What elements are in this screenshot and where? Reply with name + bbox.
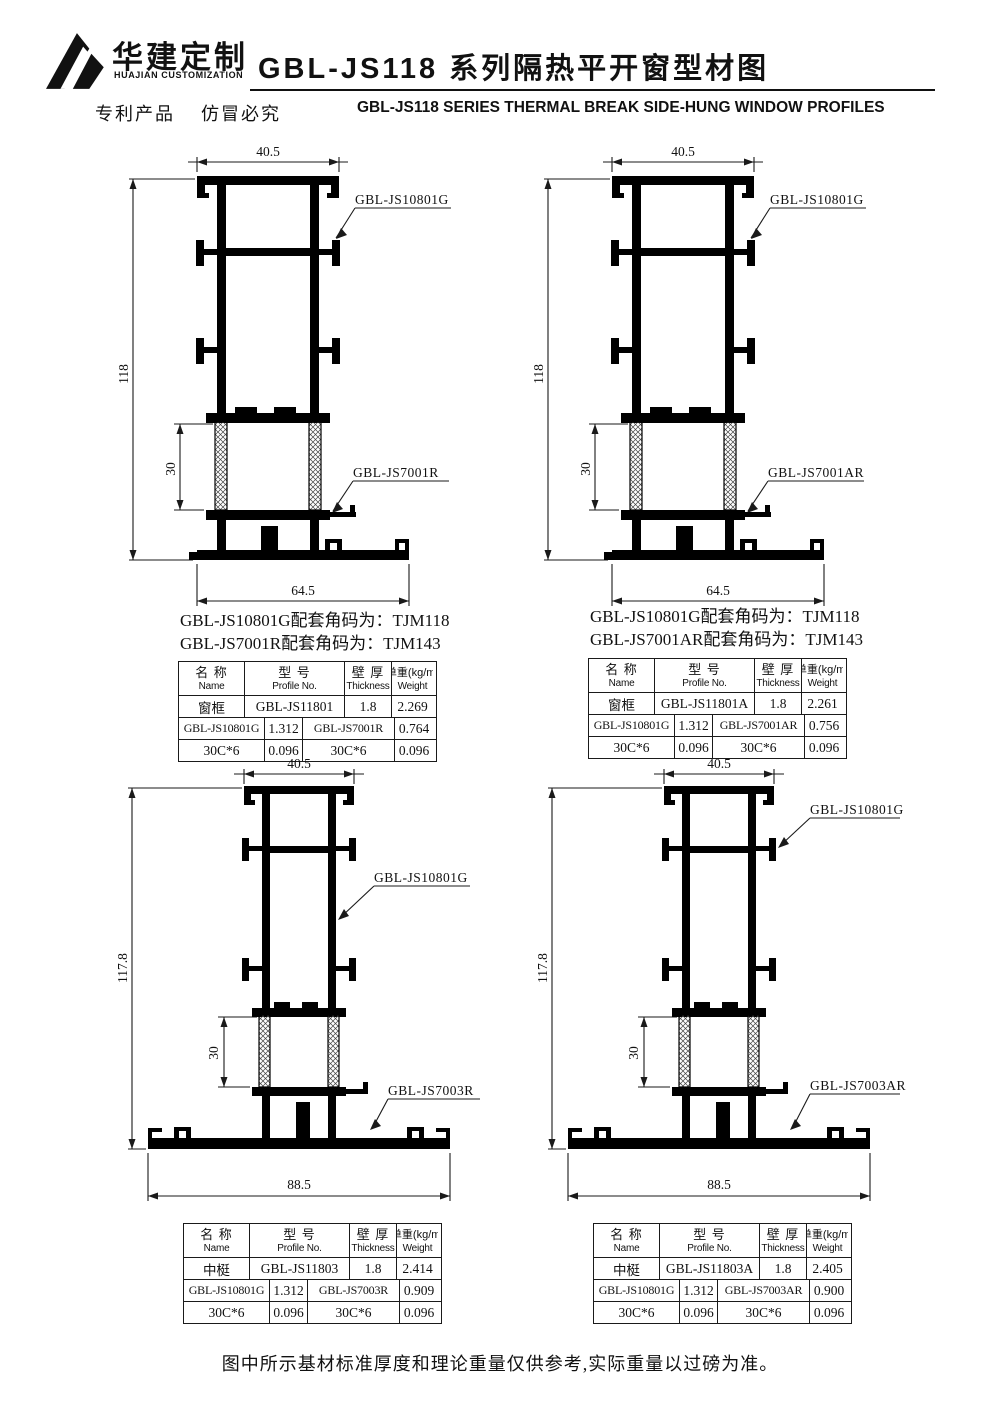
cell: 1.8 [755,693,802,714]
th-thickness: 壁 厚Thickness [345,662,392,695]
cell: 30C*6 [713,737,805,758]
corner-code-notes: GBL-JS10801G配套角码为：TJM118 GBL-JS7001R配套角码… [180,609,450,655]
th-model: 型 号Profile No. [245,662,345,695]
cell: 30C*6 [589,737,675,758]
cell: GBL-JS7003R [308,1280,400,1301]
th-weight: 单重(kg/m)Weight [392,662,433,695]
page-title-cn: GBL-JS118 系列隔热平开窗型材图 [258,45,769,87]
cell: 1.8 [345,696,392,717]
cell: 0.096 [400,1302,438,1323]
dim-inner: 30 [626,1046,641,1060]
cell: 0.096 [810,1302,848,1323]
cell: 0.096 [270,1302,308,1323]
cell: 2.405 [807,1258,848,1279]
spec-table-frame-left: 名 称Name 型 号Profile No. 壁 厚Thickness 单重(k… [178,661,437,762]
dim-height: 117.8 [118,953,130,983]
table-row: GBL-JS10801G 1.312 GBL-JS7001AR 0.756 [589,714,846,736]
th-name: 名 称Name [179,662,245,695]
th-model: 型 号Profile No. [250,1224,350,1257]
dim-width-top: 40.5 [707,756,731,771]
note-line: GBL-JS7001AR配套角码为：TJM143 [590,628,863,651]
table-header-row: 名 称Name 型 号Profile No. 壁 厚Thickness 单重(k… [589,659,846,692]
cell: 0.764 [395,718,433,739]
dim-width-bottom: 88.5 [707,1177,731,1192]
th-weight: 单重(kg/m)Weight [802,659,843,692]
cell: 30C*6 [184,1302,270,1323]
cell: 0.096 [680,1302,718,1323]
callout-part-profile: GBL-JS7001AR [768,465,864,480]
profile-drawing-frame-left: 40.5 118 30 64.5 GBL-JS10801G GBL-JS7001… [118,142,478,612]
th-model: 型 号Profile No. [655,659,755,692]
huajian-logo-icon [46,33,112,89]
callout-part-profile: GBL-JS7003R [388,1083,474,1098]
dim-height: 117.8 [538,953,550,983]
th-name: 名 称Name [594,1224,660,1257]
dim-inner: 30 [206,1046,221,1060]
spec-table-frame-right: 名 称Name 型 号Profile No. 壁 厚Thickness 单重(k… [588,658,847,759]
page: 华建定制 HUAJIAN CUSTOMIZATION 专利产品 仿冒必究 GBL… [0,0,1000,1415]
profile-drawing-mullion-left: 40.5 117.8 30 88.5 GBL-JS10801G GBL-JS70… [118,756,498,1208]
dim-height: 118 [533,364,546,384]
cell: GBL-JS10801G [179,718,265,739]
cell: GBL-JS11801A [655,693,755,714]
callout-main-profile: GBL-JS10801G [770,192,864,207]
table-header-row: 名 称Name 型 号Profile No. 壁 厚Thickness 单重(k… [594,1224,851,1257]
th-weight: 单重(kg/m)Weight [397,1224,438,1257]
table-row: 窗框 GBL-JS11801 1.8 2.269 [179,695,436,717]
footer-note: 图中所示基材标准厚度和理论重量仅供参考,实际重量以过磅为准。 [0,1350,1000,1376]
table-row: GBL-JS10801G 1.312 GBL-JS7003R 0.909 [184,1279,441,1301]
table-header-row: 名 称Name 型 号Profile No. 壁 厚Thickness 单重(k… [179,662,436,695]
cell: GBL-JS7001R [303,718,395,739]
cell: GBL-JS7001AR [713,715,805,736]
note-line: GBL-JS10801G配套角码为：TJM118 [590,605,863,628]
cell: 窗框 [179,696,245,717]
callout-main-profile: GBL-JS10801G [374,870,468,885]
cell: 中梃 [594,1258,660,1279]
th-name: 名 称Name [184,1224,250,1257]
cell: 0.096 [675,737,713,758]
table-row: GBL-JS10801G 1.312 GBL-JS7003AR 0.900 [594,1279,851,1301]
th-model: 型 号Profile No. [660,1224,760,1257]
dim-inner: 30 [578,462,593,476]
cell: 0.909 [400,1280,438,1301]
cell: 1.8 [350,1258,397,1279]
table-row: 30C*6 0.096 30C*6 0.096 [589,736,846,758]
cell: 1.312 [675,715,713,736]
cell: GBL-JS10801G [594,1280,680,1301]
cell: 1.8 [760,1258,807,1279]
dim-width-top: 40.5 [256,144,280,159]
cell: 窗框 [589,693,655,714]
cell: 1.312 [270,1280,308,1301]
cell: GBL-JS10801G [184,1280,270,1301]
cell: 2.414 [397,1258,438,1279]
dim-inner: 30 [163,462,178,476]
cell: 1.312 [265,718,303,739]
cell: 2.269 [392,696,433,717]
cell: GBL-JS11801 [245,696,345,717]
cell: 0.096 [805,737,843,758]
table-row: GBL-JS10801G 1.312 GBL-JS7001R 0.764 [179,717,436,739]
dim-height: 118 [118,364,131,384]
cell: GBL-JS11803 [250,1258,350,1279]
dim-width-bottom: 64.5 [706,583,730,598]
cell: GBL-JS10801G [589,715,675,736]
cell: GBL-JS11803A [660,1258,760,1279]
spec-table-mullion-left: 名 称Name 型 号Profile No. 壁 厚Thickness 单重(k… [183,1223,442,1324]
note-line: GBL-JS10801G配套角码为：TJM118 [180,609,450,632]
cell: 1.312 [680,1280,718,1301]
dim-width-bottom: 88.5 [287,1177,311,1192]
dim-width-top: 40.5 [671,144,695,159]
table-row: 30C*6 0.096 30C*6 0.096 [184,1301,441,1323]
callout-main-profile: GBL-JS10801G [355,192,449,207]
table-row: 30C*6 0.096 30C*6 0.096 [594,1301,851,1323]
dim-width-top: 40.5 [287,756,311,771]
cell: 30C*6 [594,1302,680,1323]
page-title-en: GBL-JS118 SERIES THERMAL BREAK SIDE-HUNG… [357,99,885,117]
cell: 0.756 [805,715,843,736]
cell: 2.261 [802,693,843,714]
th-thickness: 壁 厚Thickness [760,1224,807,1257]
cell: 中梃 [184,1258,250,1279]
profile-drawing-frame-right: 40.5 118 30 64.5 GBL-JS10801G GBL-JS7001… [533,142,893,612]
callout-part-profile: GBL-JS7001R [353,465,439,480]
th-weight: 单重(kg/m)Weight [807,1224,848,1257]
table-row: 中梃 GBL-JS11803 1.8 2.414 [184,1257,441,1279]
title-underline [250,89,935,91]
corner-code-notes: GBL-JS10801G配套角码为：TJM118 GBL-JS7001AR配套角… [590,605,863,651]
cell: 30C*6 [308,1302,400,1323]
table-row: 窗框 GBL-JS11801A 1.8 2.261 [589,692,846,714]
callout-main-profile: GBL-JS10801G [810,802,904,817]
spec-table-mullion-right: 名 称Name 型 号Profile No. 壁 厚Thickness 单重(k… [593,1223,852,1324]
logo-text-en: HUAJIAN CUSTOMIZATION [114,70,243,80]
cell: 0.900 [810,1280,848,1301]
cell: 30C*6 [718,1302,810,1323]
note-line: GBL-JS7001R配套角码为：TJM143 [180,632,450,655]
dim-width-bottom: 64.5 [291,583,315,598]
cell: GBL-JS7003AR [718,1280,810,1301]
table-header-row: 名 称Name 型 号Profile No. 壁 厚Thickness 单重(k… [184,1224,441,1257]
th-thickness: 壁 厚Thickness [350,1224,397,1257]
table-row: 中梃 GBL-JS11803A 1.8 2.405 [594,1257,851,1279]
patent-notice: 专利产品 仿冒必究 [95,100,281,126]
th-thickness: 壁 厚Thickness [755,659,802,692]
profile-drawing-mullion-right: 40.5 117.8 30 88.5 GBL-JS10801G GBL-JS70… [538,756,918,1208]
th-name: 名 称Name [589,659,655,692]
callout-part-profile: GBL-JS7003AR [810,1078,906,1093]
